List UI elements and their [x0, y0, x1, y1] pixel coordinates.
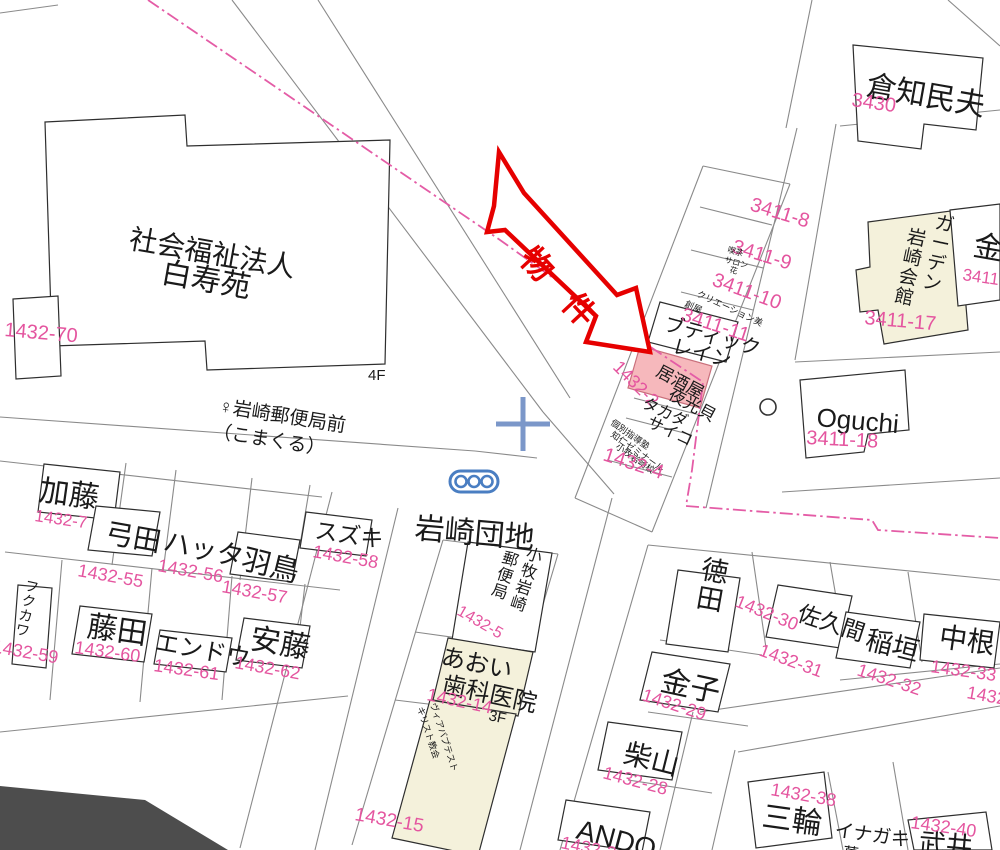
inagaki-kana-line2: 萬 — [841, 844, 859, 850]
parcel-line-24 — [575, 498, 652, 532]
parcel-line-6 — [0, 5, 58, 13]
parcel-line-4 — [475, 451, 537, 458]
parcel-line-11 — [795, 124, 836, 360]
utility-circle-icon — [760, 399, 776, 415]
parcel-3411-18: 3411-18 — [806, 427, 879, 453]
parcel-line-48 — [50, 560, 62, 700]
parcel-line-30 — [712, 750, 735, 850]
parcel-line-13 — [782, 478, 1000, 492]
floor-4f: 4F — [368, 367, 386, 384]
parcel-1432-31: 1432-31 — [757, 640, 826, 681]
parcel-line-28 — [738, 706, 1000, 752]
danchi-pill-circle-0 — [456, 476, 467, 487]
parcel-1432-33b: 1432- — [965, 682, 1000, 710]
dark-roof-building — [0, 786, 228, 850]
tiny-tenant-line3: 花 — [728, 264, 738, 276]
map-canvas[interactable]: 倉知民夫3430社会福祉法人白寿苑1432-704F♀岩崎郵便局前（こまくる）加… — [0, 0, 1000, 850]
parcel-1432-55: 1432-55 — [76, 560, 145, 591]
danchi-pill-circle-1 — [469, 476, 480, 487]
danchi-pill-circle-2 — [482, 476, 493, 487]
danchi-name: 岩崎団地 — [413, 512, 535, 555]
parcel-line-12 — [795, 352, 1000, 362]
parcel-line-8 — [948, 0, 1000, 46]
parcel-line-42 — [0, 696, 348, 732]
parcel-line-7 — [786, 0, 812, 128]
residential-map-view[interactable]: 倉知民夫3430社会福祉法人白寿苑1432-704F♀岩崎郵便局前（こまくる）加… — [0, 0, 1000, 850]
parcel-line-17 — [703, 166, 790, 184]
kin-name: 金 — [971, 229, 1000, 267]
